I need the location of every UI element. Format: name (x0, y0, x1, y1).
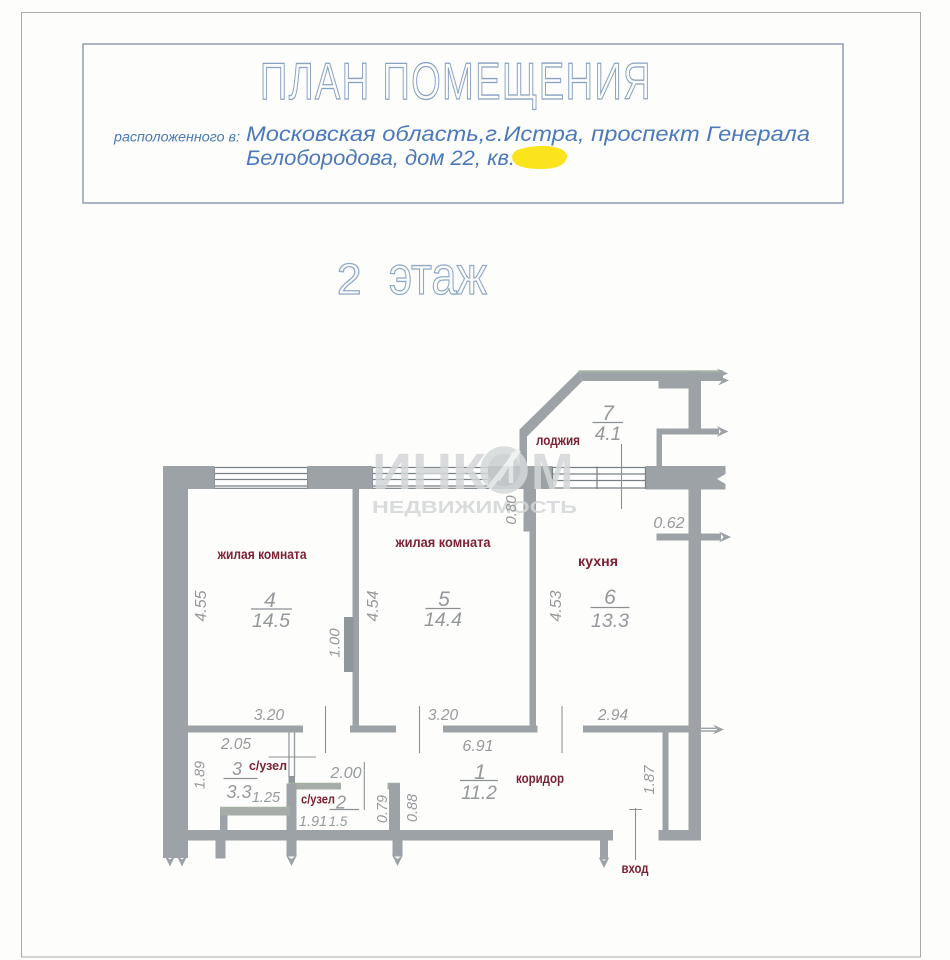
svg-text:ПЛАН ПОМЕЩЕНИЯ: ПЛАН ПОМЕЩЕНИЯ (260, 53, 652, 111)
svg-text:вход: вход (622, 861, 649, 876)
svg-text:7: 7 (602, 402, 615, 425)
svg-text:0.80: 0.80 (503, 495, 520, 525)
svg-text:4.53: 4.53 (548, 590, 565, 621)
svg-text:с/узел: с/узел (301, 792, 335, 807)
svg-text:14.4: 14.4 (424, 609, 462, 631)
svg-text:5: 5 (438, 588, 450, 611)
svg-text:6.91: 6.91 (462, 738, 493, 755)
svg-text:с/узел: с/узел (249, 758, 287, 773)
svg-text:коридор: коридор (516, 770, 564, 786)
svg-text:Московская область,г.Истра, пр: Московская область,г.Истра, проспект Ген… (246, 123, 810, 146)
svg-text:лоджия: лоджия (536, 433, 580, 448)
svg-text:жилая комната: жилая комната (395, 534, 491, 550)
svg-text:3.3: 3.3 (226, 782, 251, 802)
svg-text:этаж: этаж (389, 246, 487, 306)
svg-text:13.3: 13.3 (591, 610, 629, 632)
svg-text:кухня: кухня (578, 553, 618, 569)
svg-text:4.1: 4.1 (595, 424, 621, 445)
svg-text:4.55: 4.55 (193, 590, 210, 621)
svg-text:0.62: 0.62 (653, 515, 684, 532)
svg-text:3: 3 (232, 759, 242, 779)
svg-text:2.00: 2.00 (329, 765, 361, 782)
svg-text:2.94: 2.94 (597, 707, 629, 724)
svg-text:6: 6 (604, 586, 616, 609)
svg-text:1.00: 1.00 (327, 628, 344, 658)
svg-text:3.20: 3.20 (428, 707, 459, 724)
svg-text:1.87: 1.87 (641, 765, 658, 795)
svg-text:4: 4 (264, 589, 276, 612)
svg-text:жилая комната: жилая комната (217, 546, 307, 562)
svg-text:НЕДВИЖИМОСТЬ: НЕДВИЖИМОСТЬ (372, 497, 577, 517)
svg-text:3.20: 3.20 (254, 707, 285, 724)
svg-text:1.5: 1.5 (329, 814, 348, 829)
svg-text:1.91: 1.91 (299, 814, 327, 830)
svg-text:1.25: 1.25 (252, 790, 281, 806)
svg-text:Белобородова, дом 22, кв.: Белобородова, дом 22, кв. (246, 147, 515, 170)
svg-text:0.88: 0.88 (405, 794, 421, 822)
svg-text:1.89: 1.89 (193, 761, 209, 789)
svg-text:2: 2 (337, 255, 361, 304)
svg-text:4.54: 4.54 (365, 590, 382, 621)
svg-text:14.5: 14.5 (252, 610, 290, 632)
svg-text:0.79: 0.79 (375, 795, 391, 823)
svg-text:ИНК: ИНК (372, 443, 487, 500)
svg-text:1: 1 (474, 761, 486, 784)
svg-text:2: 2 (335, 793, 346, 813)
svg-text:М: М (531, 443, 573, 500)
svg-text:2.05: 2.05 (220, 736, 252, 753)
svg-text:11.2: 11.2 (461, 783, 497, 804)
svg-text:расположенного в:: расположенного в: (113, 130, 240, 145)
